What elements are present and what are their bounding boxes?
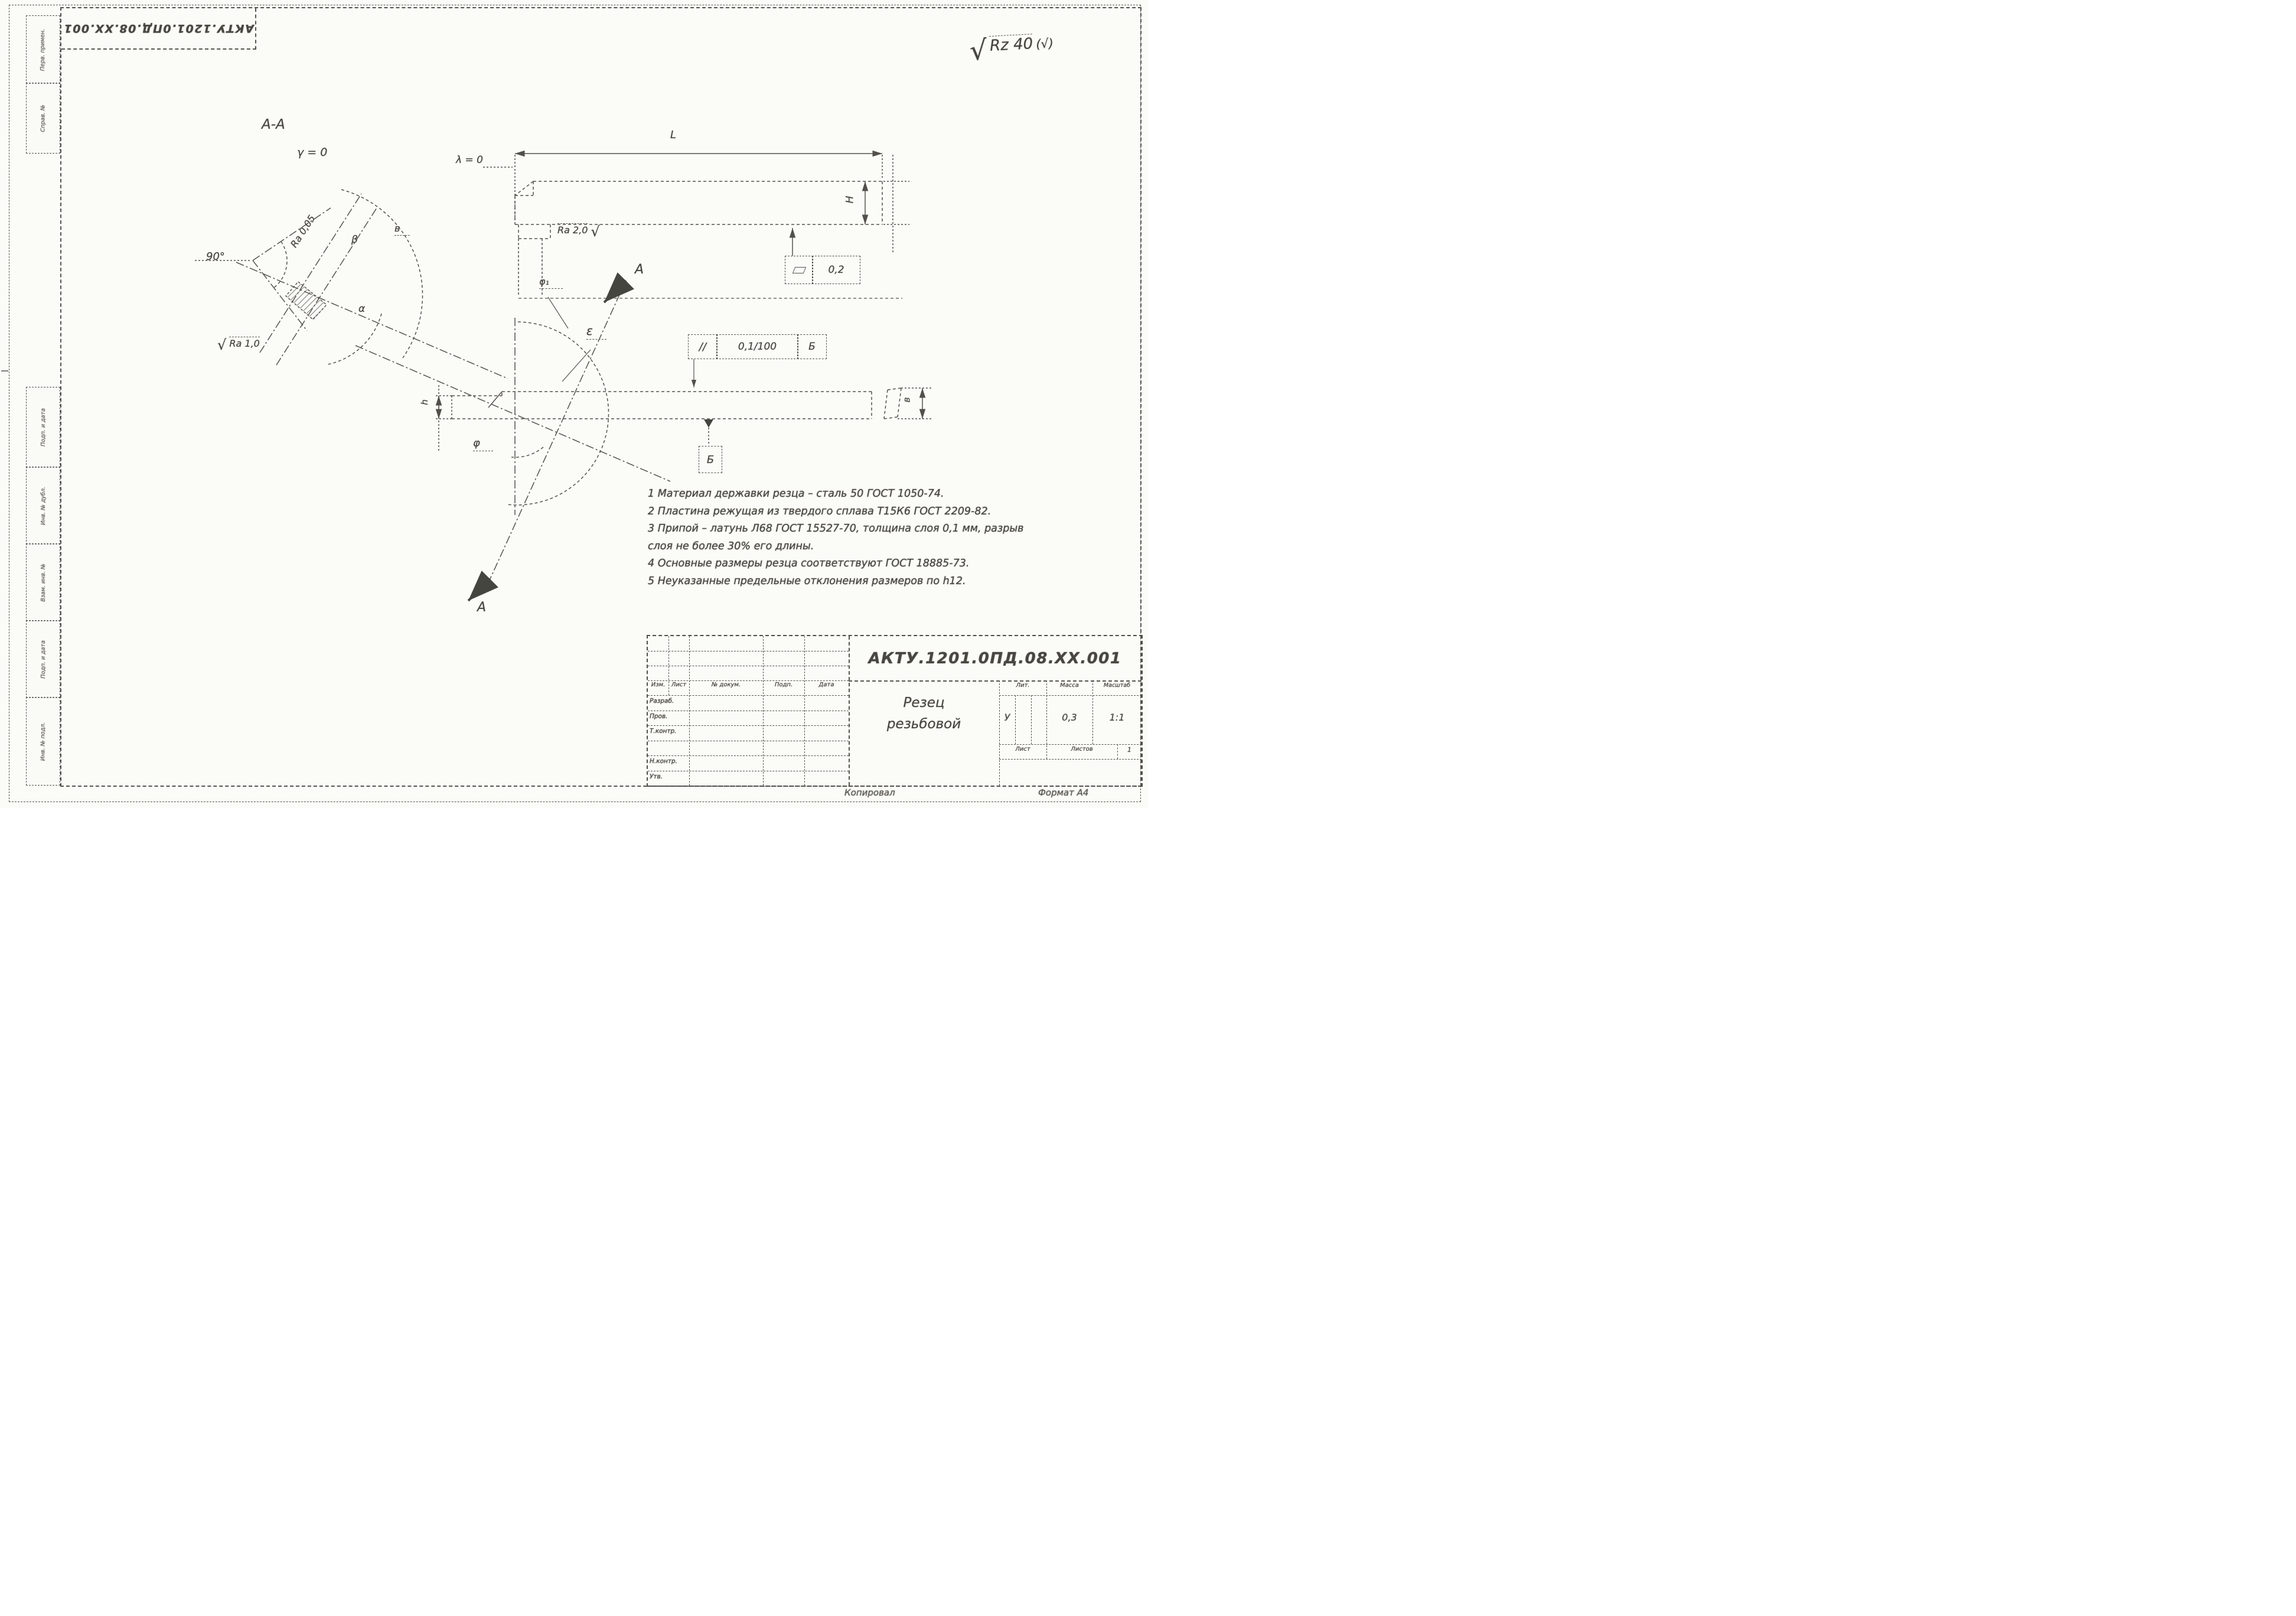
lit-header: Лит. [999,682,1046,689]
stamp-doc-number: АКТУ.1201.0ПД.08.ХХ.001 [63,22,254,35]
margin-cell-inv-podl: Инв. № подл. [26,697,60,786]
angle-90-label: 90° [206,250,225,263]
section-arrow-bottom [468,579,490,601]
flatness-value-cell: 0,2 [812,256,860,284]
note-line: 4 Основные размеры резца соответствуют Г… [648,555,1126,573]
title-block: Изм. Лист № докум. Подп. Дата Разраб. Пр… [647,635,1143,787]
scale-value: 1:1 [1092,712,1142,723]
beta-label: β [351,234,358,246]
part-name-line2: резьбовой [849,716,999,732]
flatness-icon [792,267,805,273]
footer-copied: Копировал [844,787,895,798]
row-prov: Пров. [650,713,668,720]
col-data: Дата [804,682,849,688]
mass-header: Масса [1046,682,1092,689]
section-arrow-top [604,281,626,302]
phi-label: φ [473,437,493,451]
note-line: слоя не более 30% его длины. [648,538,1126,556]
row-razrab: Разраб. [650,698,674,705]
note-line: 3 Припой – латунь Л68 ГОСТ 15527-70, тол… [648,520,1126,538]
row-utv: Утв. [650,773,663,780]
parallelism-icon: ∕∕ [699,341,706,353]
alpha-label: α [358,303,365,315]
dim-L-label: L [670,129,676,141]
section-letter-bottom: А [477,600,486,615]
dim-b-label: в [901,398,912,403]
parallelism-symbol-cell: ∕∕ [688,334,717,359]
datum-flag-box: Б [699,446,722,473]
titleblock-doc-number: АКТУ.1201.0ПД.08.ХХ.001 [852,641,1139,676]
margin-cell-vzam-inv: Взам. инв. № [26,543,60,621]
datum-triangle [704,419,713,428]
v-label: в [394,223,410,236]
col-izm: Изм. [648,682,668,688]
col-podp: Подп. [763,682,804,688]
lambda-label: λ = 0 [456,154,483,166]
roughness-check-icon: √ [969,34,988,66]
margin-cell-inv-dubl: Инв. № дубл. [26,467,60,545]
roughness-check-icon: √ [591,223,600,240]
footer-format: Формат А4 [1038,787,1088,798]
mass-value: 0,3 [1046,712,1092,723]
margin-cell-perv-primen: Перв. примен. [26,15,60,84]
section-aa-title: А-А [262,117,285,132]
technical-notes: 1 Материал державки резца – сталь 50 ГОС… [648,486,1126,590]
carbide-tip-wedge [286,282,327,320]
ra-flank-mark: √ Ra 1,0 [217,337,260,353]
row-nkontr: Н.контр. [650,758,677,765]
dim-h-label: h [419,399,430,405]
parallelism-datum-cell: Б [797,334,827,359]
parallelism-value-cell: 0,1/100 [716,334,798,359]
sheet-label: Лист [999,746,1046,752]
dim-H-label: H [844,196,856,204]
note-line: 2 Пластина режущая из твердого сплава Т1… [648,503,1126,521]
roughness-check-icon: √ [217,337,226,353]
drawing-sheet: АКТУ.1201.0ПД.08.ХХ.001 Перв. примен. Сп… [0,0,1148,808]
part-name-line1: Резец [849,695,999,711]
epsilon-label: ε [586,324,606,340]
col-doc: № докум. [689,682,763,688]
phi1-label: φ₁ [539,276,563,289]
section-letter-top: А [635,262,644,277]
margin-cell-podp-data-1: Подп. и дата [26,387,60,468]
sheets-label: Листов [1046,746,1117,752]
top-left-stamp-box: АКТУ.1201.0ПД.08.ХХ.001 [61,8,256,50]
margin-cell-sprav: Справ. № [26,83,60,154]
margin-cell-podp-data-2: Подп. и дата [26,620,60,698]
section-trace-extension [236,262,508,379]
general-roughness-mark: √ Rz 40 (√) [969,30,1055,66]
scale-header: Масштаб [1092,682,1142,689]
note-line: 1 Материал державки резца – сталь 50 ГОС… [648,486,1126,503]
vertex-circle [507,322,609,505]
gamma-label: γ = 0 [297,146,327,159]
col-list: Лист [668,682,689,688]
sheets-value: 1 [1117,746,1142,754]
lit-value: У [999,712,1015,723]
note-line: 5 Неуказанные предельные отклонения разм… [648,573,1126,591]
ra-shank-mark: Ra 2,0 √ [557,223,600,240]
row-tkontr: Т.контр. [650,728,677,735]
flatness-symbol-cell [785,256,813,284]
